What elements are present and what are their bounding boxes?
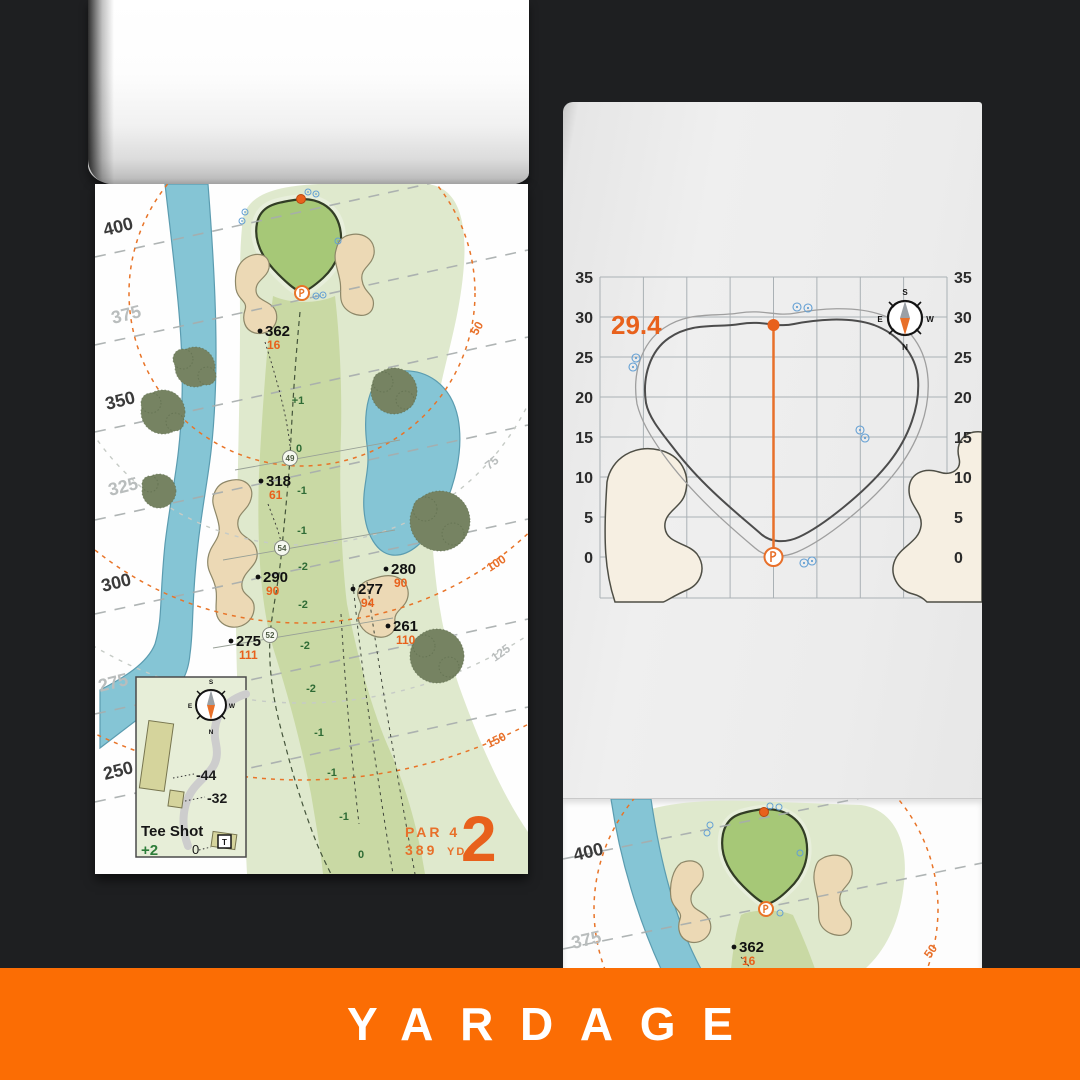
tee-marker-icon: T [211,831,237,849]
bunker [605,449,702,602]
next-hole-map: 400 375 50 362 16 [563,799,982,969]
yardage-book-scene: 400 375 350 325 300 275 250 50 75 100 12… [0,0,1080,1080]
green-detail-chart: 29.4 S N W E [563,102,982,798]
svg-text:52: 52 [266,631,275,640]
svg-text:0: 0 [584,550,593,567]
hole-map: 400 375 350 325 300 275 250 50 75 100 12… [95,184,528,874]
tree [173,347,216,387]
compass-icon: S N W E [877,288,934,352]
tee-zero-label: 0 [192,842,199,857]
tree [371,368,417,414]
svg-text:35: 35 [954,270,972,287]
forward-tee-box [168,790,184,808]
svg-text:S: S [902,288,908,297]
green-outline-outer [636,309,929,556]
next-hole-page: 400 375 50 362 16 [563,798,982,969]
tee-depth-label: -44 [196,767,216,783]
arc-label: 50 [467,319,486,338]
arc-label: 50 [921,941,940,960]
river [100,184,216,748]
tee-inset-title: Tee Shot [141,823,203,840]
arc-label: 150 [484,729,508,751]
svg-text:20: 20 [954,390,972,407]
svg-text:-2: -2 [300,640,310,652]
svg-text:10: 10 [954,470,972,487]
tree [141,390,185,434]
svg-text:N: N [209,729,214,736]
svg-text:W: W [229,703,236,710]
pin-icon [765,548,783,566]
arc-labels: 50 75 100 125 150 [467,319,513,751]
svg-text:49: 49 [286,454,295,463]
left-page-curl [88,0,529,185]
tree [142,474,176,508]
arc-label: 75 [482,453,501,472]
tick-labels-left: 35 30 25 20 15 10 5 0 [575,270,593,567]
svg-text:90: 90 [394,576,408,590]
tree [410,629,464,683]
svg-text:61: 61 [269,488,283,502]
side-yardage: 375 [569,927,603,953]
svg-text:0: 0 [954,550,963,567]
svg-text:15: 15 [954,430,972,447]
side-yardage: 325 [106,473,140,500]
carry-marker: 275111 [229,633,261,662]
tee-depth-label: -32 [207,790,227,806]
svg-text:T: T [222,838,227,847]
svg-text:94: 94 [361,596,375,610]
green-detail-page: 29.4 S N W E [563,102,982,798]
svg-text:-1: -1 [314,727,324,739]
side-yardage: 250 [101,757,135,784]
svg-text:-1: -1 [297,485,307,497]
svg-text:35: 35 [575,270,593,287]
depth-dot [768,319,780,331]
pin-icon [759,902,773,916]
hole-map-page: 400 375 350 325 300 275 250 50 75 100 12… [95,184,528,874]
banner-title: YARDAGE [320,997,759,1051]
arc-label: 100 [484,552,509,575]
svg-text:20: 20 [575,390,593,407]
svg-text:90: 90 [266,584,280,598]
book-spine-shadow [88,0,114,185]
depth-value: 29.4 [611,310,662,340]
side-yardage: 400 [101,213,135,240]
tee-shot-inset: -44 -32 Tee Shot +2 0 T [136,677,246,859]
bunker [208,480,258,628]
svg-text:110: 110 [396,633,416,647]
pin-icon [295,286,309,300]
svg-text:0: 0 [358,849,364,861]
svg-text:25: 25 [954,350,972,367]
side-yardage: 375 [109,301,143,328]
svg-text:111: 111 [239,648,258,662]
svg-text:30: 30 [954,310,972,327]
tree [410,491,470,551]
svg-text:E: E [877,315,883,324]
side-yardage: 300 [99,569,133,596]
svg-text:+1: +1 [292,395,305,407]
svg-text:5: 5 [584,510,593,527]
par-label: PAR 4 [405,824,460,840]
svg-text:54: 54 [278,544,287,553]
svg-text:S: S [209,679,214,686]
svg-text:E: E [188,703,193,710]
svg-text:16: 16 [267,338,281,352]
svg-text:-1: -1 [297,525,307,537]
green-outline-inner [645,320,918,542]
svg-text:-2: -2 [298,599,308,611]
green-back-dot [297,195,306,204]
green-back-dot [760,808,769,817]
svg-text:-1: -1 [339,811,349,823]
svg-text:5: 5 [954,510,963,527]
tee-relative-value: +2 [141,842,158,859]
svg-text:25: 25 [575,350,593,367]
svg-text:-1: -1 [327,767,337,779]
svg-text:-2: -2 [306,683,316,695]
yards-value: 389 [405,842,437,858]
svg-text:10: 10 [575,470,593,487]
arc-label: 125 [489,641,514,664]
yardage-banner: YARDAGE [0,968,1080,1080]
hole-number: 2 [461,803,497,874]
svg-text:15: 15 [575,430,593,447]
svg-text:30: 30 [575,310,593,327]
svg-text:W: W [926,315,934,324]
svg-text:-2: -2 [298,561,308,573]
svg-text:N: N [902,343,908,352]
side-yardage: 350 [103,387,137,414]
svg-text:0: 0 [296,443,302,455]
